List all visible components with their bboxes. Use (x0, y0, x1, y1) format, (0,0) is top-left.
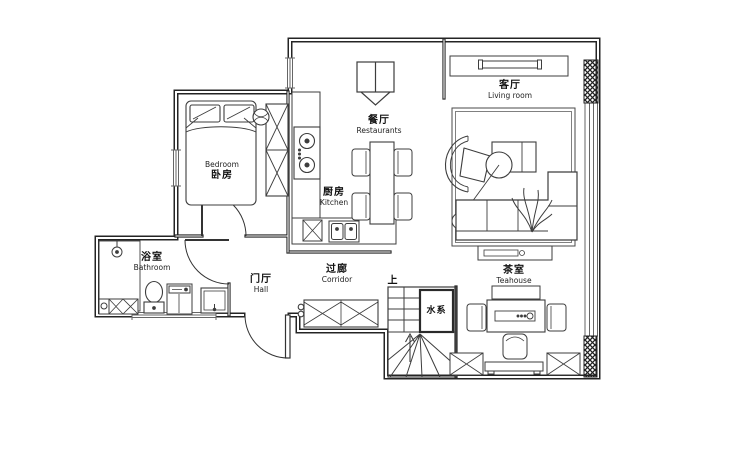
bathroom-label-zh: 浴室 (134, 252, 171, 264)
washing-machine (201, 288, 228, 313)
dishwasher (303, 220, 322, 241)
window-right-wall (584, 103, 598, 336)
cooktop (294, 127, 320, 179)
corridor-label-en: Corridor (322, 275, 352, 284)
kitchen-label-en: Kitchen (320, 198, 348, 207)
room-label-hall: 门厅 Hall (250, 274, 272, 294)
stairs-up-label: 上 (388, 275, 399, 287)
window-bedroom-left (171, 150, 181, 186)
stairs-direction-arrow (406, 334, 415, 362)
kitchen-sink (329, 221, 359, 242)
dining-label-en: Restaurants (357, 126, 402, 135)
living-label-en: Living room (488, 91, 532, 100)
room-label-bedroom: Bedroom 卧房 (205, 161, 239, 181)
tea-chair-left (467, 304, 486, 331)
refrigerator (357, 62, 394, 105)
wall-column-bottom-right (584, 336, 597, 377)
stairs-up-label-zh: 上 (388, 275, 399, 287)
shower-head-icon (112, 241, 122, 257)
window-kitchen-left (285, 58, 295, 88)
corridor-bench (298, 300, 378, 327)
tea-table (487, 300, 545, 332)
water-feature-label-zh: 水系 (426, 306, 446, 316)
teahouse-bench (485, 362, 543, 374)
bedroom-label-zh: 卧房 (205, 170, 239, 182)
dining-label-zh: 餐厅 (357, 115, 402, 127)
bedroom-stool (253, 109, 269, 125)
bathroom-door (185, 240, 229, 284)
room-label-bathroom: 浴室 Bathroom (134, 252, 171, 272)
teahouse-label-zh: 茶室 (496, 265, 531, 277)
room-label-dining: 餐厅 Restaurants (357, 115, 402, 135)
hall-label-zh: 门厅 (250, 274, 272, 286)
sofa-back-console (478, 246, 552, 260)
tea-stool-bottom (503, 334, 527, 359)
room-label-living: 客厅 Living room (488, 80, 532, 100)
wall-column-top-right (584, 60, 598, 103)
tea-chair-right (547, 304, 566, 331)
room-label-corridor: 过廊 Corridor (322, 264, 352, 284)
bathroom-label-en: Bathroom (134, 263, 171, 272)
floor-plan-drawing (0, 0, 740, 463)
room-label-kitchen: 厨房 Kitchen (320, 187, 348, 207)
bed (186, 101, 256, 205)
room-label-teahouse: 茶室 Teahouse (496, 265, 531, 285)
tea-bench-top (492, 286, 540, 299)
water-feature-label: 水系 (426, 306, 446, 316)
dining-table (370, 142, 394, 224)
bedroom-label-en: Bedroom (205, 161, 239, 170)
corridor-label-zh: 过廊 (322, 264, 352, 276)
floor-plan: Bedroom 卧房 厨房 Kitchen 餐厅 Restaurants 客厅 … (0, 0, 740, 463)
hall-label-en: Hall (250, 285, 272, 294)
vanity-sink (167, 284, 192, 314)
tv-console (450, 56, 568, 76)
bathroom-cabinet (99, 299, 138, 314)
entry-door (245, 315, 290, 358)
toilet (144, 282, 164, 314)
kitchen-label-zh: 厨房 (320, 187, 348, 199)
living-label-zh: 客厅 (488, 80, 532, 92)
teahouse-label-en: Teahouse (496, 276, 531, 285)
